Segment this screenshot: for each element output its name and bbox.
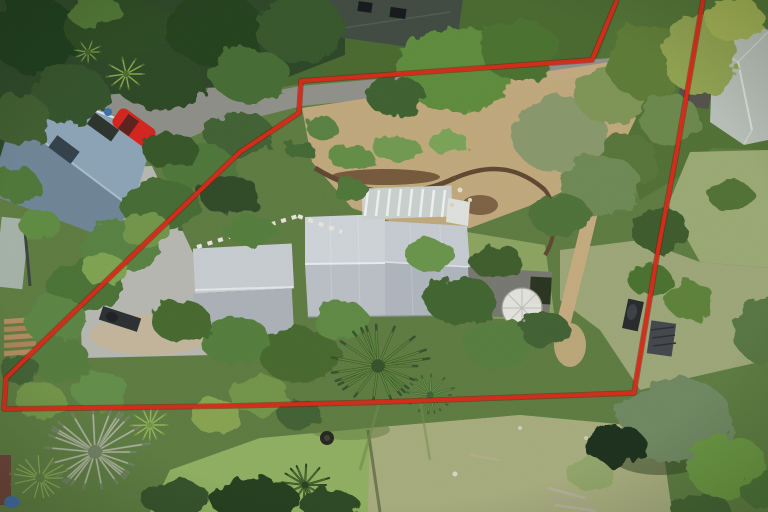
photo-render-root — [0, 0, 768, 512]
aerial-photo-svg — [0, 0, 768, 512]
aerial-property-photo — [0, 0, 768, 512]
photo-vignette — [0, 0, 768, 512]
screenshot-stage — [0, 0, 768, 512]
